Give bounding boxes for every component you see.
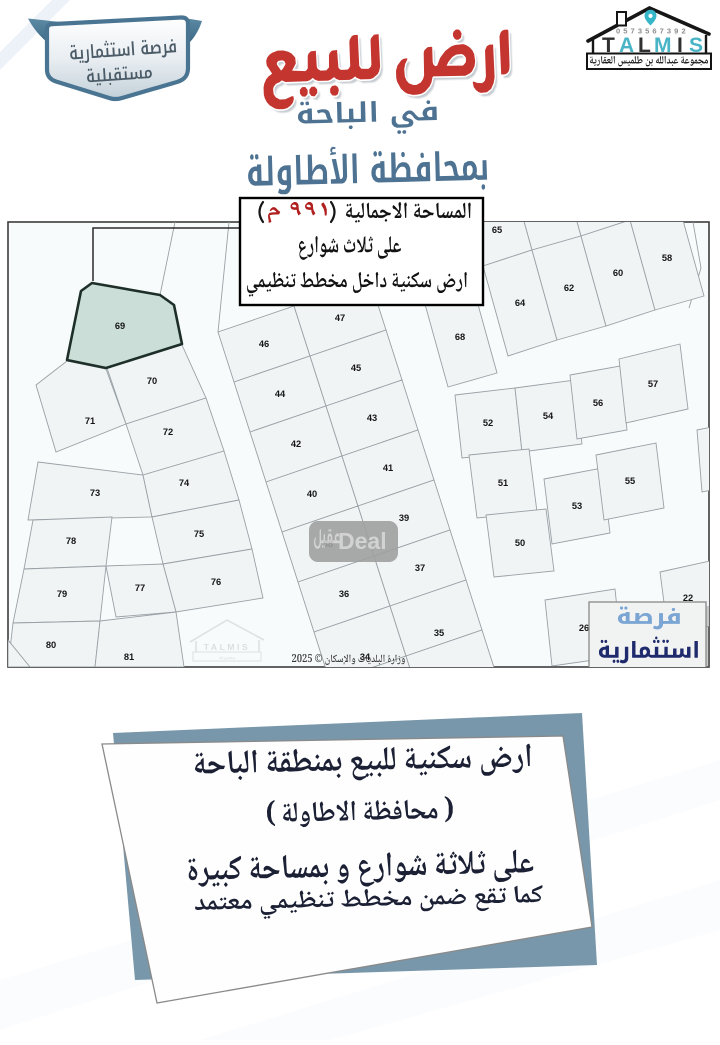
svg-text:58: 58 [662,253,672,263]
svg-text:مجموعة: مجموعة [218,655,235,661]
svg-text:34: 34 [360,652,371,662]
svg-text:71: 71 [85,416,95,426]
svg-text:39: 39 [399,513,409,523]
svg-text:43: 43 [367,413,377,423]
svg-text:50: 50 [515,538,525,548]
svg-text:26: 26 [579,623,589,633]
svg-text:70: 70 [147,376,157,386]
svg-text:69: 69 [115,321,125,331]
svg-text:51: 51 [498,478,508,488]
svg-text:81: 81 [124,652,134,662]
svg-text:80: 80 [46,640,56,650]
svg-text:42: 42 [291,439,301,449]
svg-text:TALMIS: TALMIS [204,642,251,652]
svg-text:62: 62 [564,283,574,293]
svg-text:36: 36 [339,589,349,599]
svg-text:53: 53 [572,501,582,511]
svg-text:40: 40 [307,489,317,499]
svg-text:41: 41 [383,463,393,473]
svg-text:78: 78 [66,536,76,546]
svg-text:75: 75 [194,529,204,539]
svg-text:Deal: Deal [338,528,387,554]
svg-text:73: 73 [90,488,100,498]
svg-text:45: 45 [351,363,361,373]
svg-text:64: 64 [515,298,526,308]
svg-text:79: 79 [57,589,67,599]
svg-text:60: 60 [613,268,623,278]
svg-text:74: 74 [179,478,190,488]
svg-text:47: 47 [335,313,345,323]
svg-text:54: 54 [543,411,554,421]
svg-text:55: 55 [625,476,635,486]
svg-text:76: 76 [211,577,221,587]
svg-text:57: 57 [648,379,658,389]
svg-text:65: 65 [492,225,502,235]
svg-text:68: 68 [455,332,465,342]
svg-text:35: 35 [434,628,444,638]
svg-text:46: 46 [259,339,269,349]
svg-text:44: 44 [275,389,286,399]
svg-text:52: 52 [483,418,493,428]
svg-text:56: 56 [593,398,603,408]
svg-text:77: 77 [135,583,145,593]
svg-text:37: 37 [415,563,425,573]
svg-text:72: 72 [163,427,173,437]
